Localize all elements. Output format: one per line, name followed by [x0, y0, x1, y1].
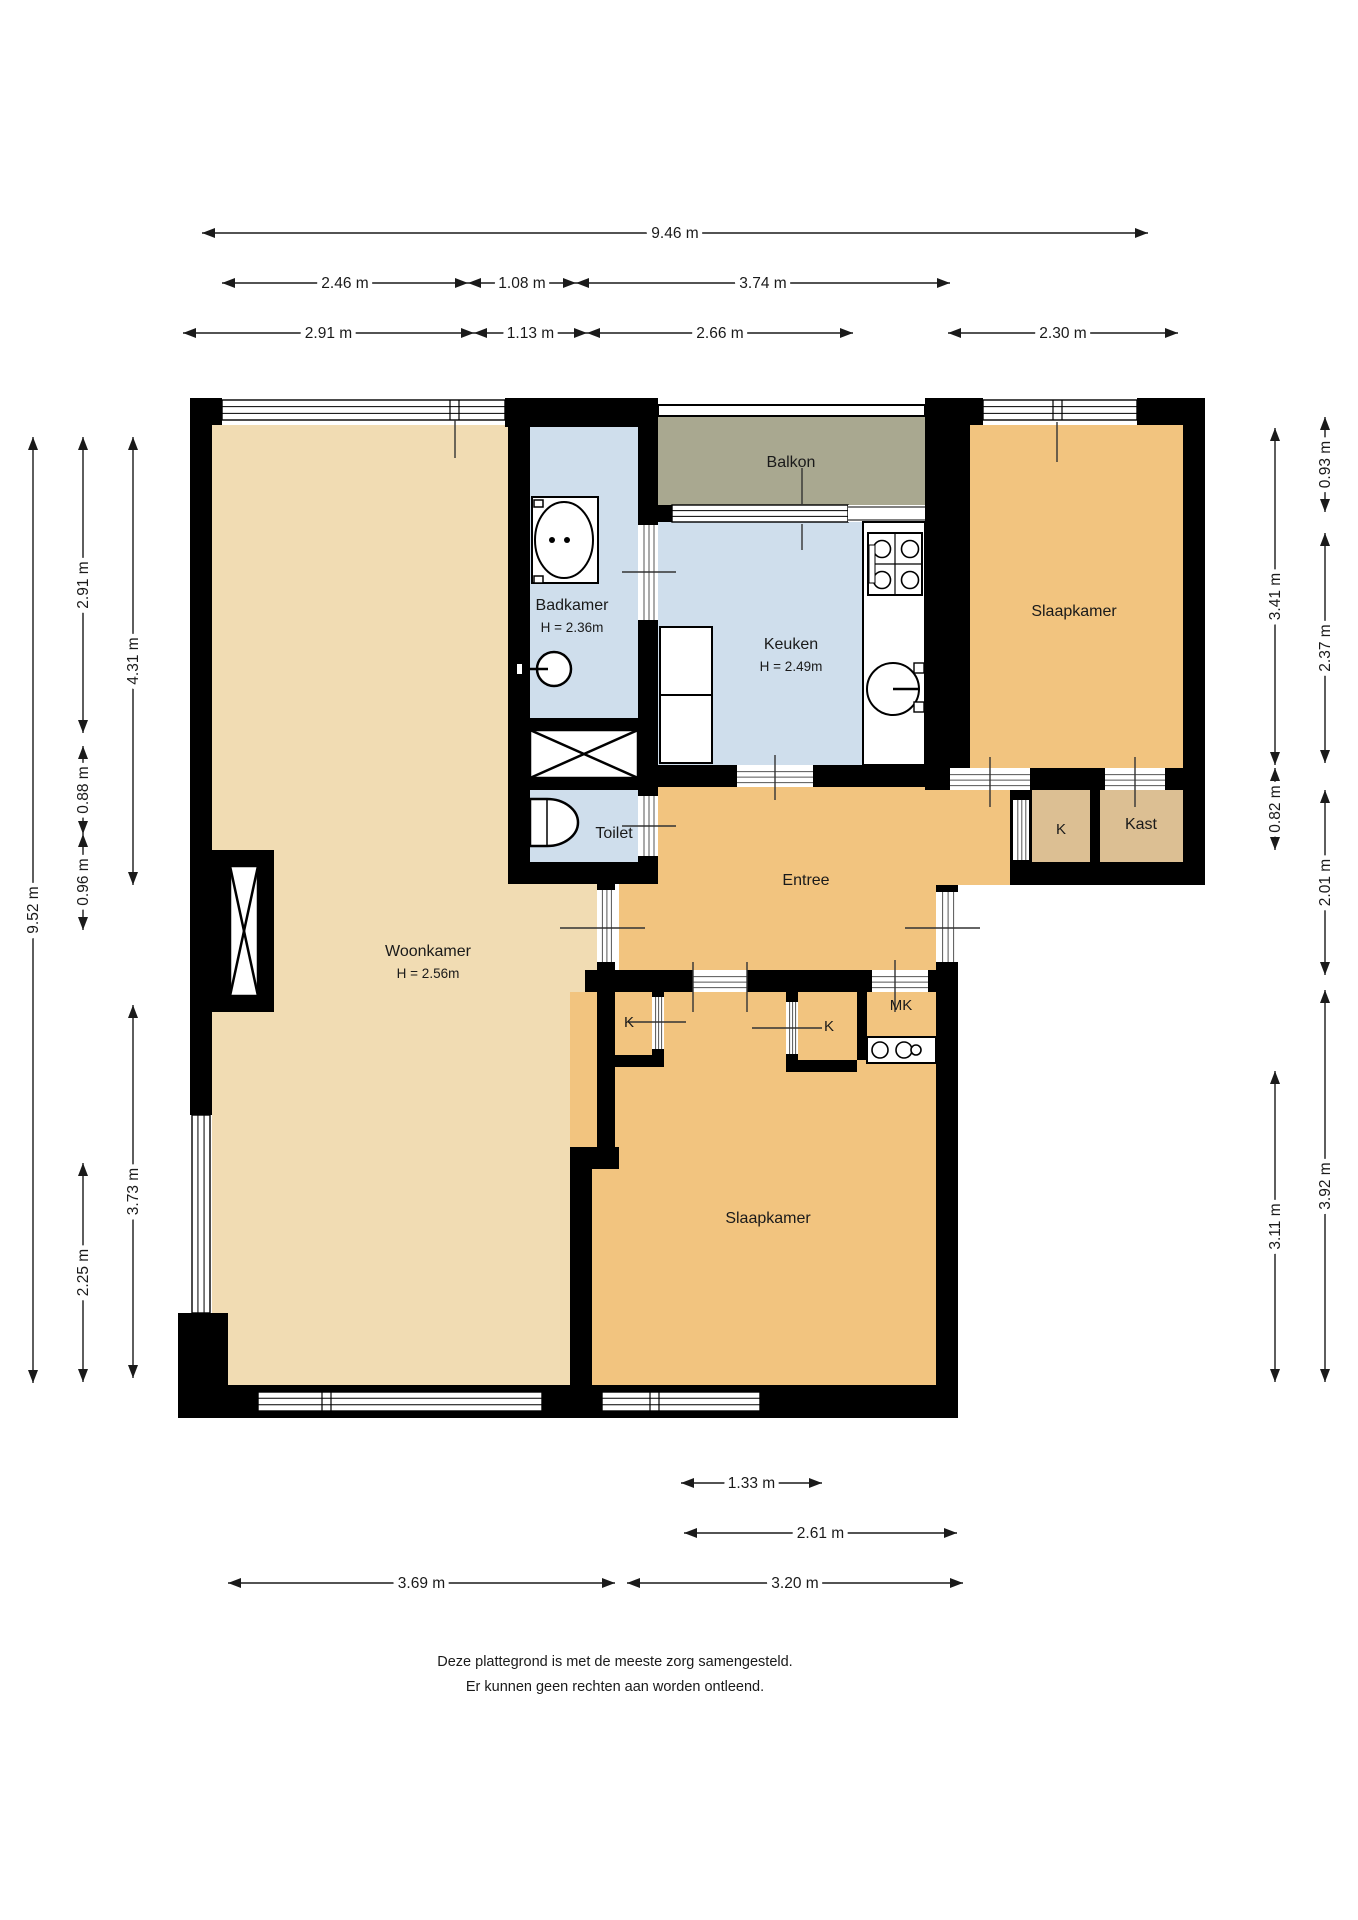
room-label-slaapkamer-1: Slaapkamer: [1031, 603, 1117, 620]
dimension-arrow: [950, 1578, 963, 1588]
dimension-0.96-m: 0.96 m: [75, 834, 92, 930]
dimension-arrow: [78, 821, 88, 834]
dimension-arrow: [78, 437, 88, 450]
dimension-arrow: [78, 834, 88, 847]
dimension-arrow: [937, 278, 950, 288]
wall: [190, 398, 222, 425]
dimension-arrow: [183, 328, 196, 338]
dimension-arrow: [461, 328, 474, 338]
dimension-arrow: [627, 1578, 640, 1588]
dimension-arrow: [222, 278, 235, 288]
dimension-arrow: [1270, 428, 1280, 441]
dimension-label: 2.66 m: [696, 325, 743, 342]
dimension-label: 2.30 m: [1039, 325, 1086, 342]
dimension-3.92-m: 3.92 m: [1317, 990, 1334, 1382]
dimension-3.73-m: 3.73 m: [125, 1005, 142, 1378]
dimension-label: 2.25 m: [75, 1249, 92, 1296]
stove-icon: [869, 545, 875, 583]
balcony-railing: [658, 405, 925, 416]
floorplan-canvas: BalkonBadkamerH = 2.36mKeukenH = 2.49mSl…: [0, 0, 1358, 1920]
door-opening-woonkamer: [597, 890, 615, 962]
dimension-label: 3.20 m: [771, 1575, 818, 1592]
room-label-toilet: Toilet: [595, 825, 633, 842]
dimension-arrow: [1270, 837, 1280, 850]
dimension-label: 2.61 m: [797, 1525, 844, 1542]
wall: [190, 425, 212, 1115]
dimension-arrow: [78, 720, 88, 733]
meter-icon: [896, 1042, 912, 1058]
dimension-arrow: [948, 328, 961, 338]
meter-icon: [911, 1045, 921, 1055]
sink-icon: [516, 663, 523, 675]
door-opening-meterkast: [872, 970, 928, 992]
dimension-label: 0.82 m: [1267, 785, 1284, 832]
window: [222, 400, 505, 420]
fills-layer: [212, 412, 1183, 1385]
window: [258, 1392, 542, 1411]
stove-burner-icon: [874, 572, 891, 589]
dimension-arrow: [563, 278, 576, 288]
dimension-arrow: [78, 1163, 88, 1176]
wall: [1183, 425, 1205, 885]
dimension-arrow: [944, 1528, 957, 1538]
stove-burner-icon: [874, 541, 891, 558]
washbasin-icon: [534, 500, 543, 507]
door-opening-slaapkamer-2: [693, 970, 747, 992]
disclaimer-line-2: Er kunnen geen rechten aan worden ontlee…: [0, 1675, 1230, 1700]
window: [192, 1115, 210, 1313]
dimension-arrow: [202, 228, 215, 238]
dimension-0.88-m: 0.88 m: [75, 746, 92, 834]
window: [602, 1392, 760, 1411]
wall: [936, 992, 958, 1385]
washbasin-icon: [549, 537, 555, 543]
dimension-label: 1.33 m: [728, 1475, 775, 1492]
dimension-arrow: [1320, 790, 1330, 803]
room-height-label-woonkamer: H = 2.56m: [397, 966, 460, 981]
dimension-arrow: [1135, 228, 1148, 238]
dimension-arrow: [468, 278, 481, 288]
dimension-arrow: [1320, 1369, 1330, 1382]
door-opening-closet-k-1: [1013, 800, 1029, 860]
wall: [1090, 790, 1100, 862]
dimension-arrow: [1320, 990, 1330, 1003]
dimension-3.74-m: 3.74 m: [576, 275, 950, 292]
room-slaapkamer-1: [965, 425, 1183, 768]
room-label-closet-k-1: K: [1056, 821, 1066, 838]
dimension-arrow: [78, 1369, 88, 1382]
dimension-2.91-m: 2.91 m: [183, 325, 474, 342]
wall: [1137, 398, 1205, 425]
stove-burner-icon: [902, 572, 919, 589]
wall: [508, 425, 530, 884]
room-label-closet-k-3: K: [824, 1018, 834, 1035]
dimension-label: 2.01 m: [1317, 859, 1334, 906]
disclaimer: Deze plattegrond is met de meeste zorg s…: [0, 1650, 1230, 1700]
dimension-arrow: [78, 746, 88, 759]
dimension-arrow: [1270, 1071, 1280, 1084]
dimension-9.46-m: 9.46 m: [202, 225, 1148, 242]
wall: [178, 1313, 228, 1418]
wall: [925, 398, 983, 425]
dimension-arrow: [78, 917, 88, 930]
dimension-label: 0.88 m: [75, 766, 92, 813]
dimension-4.31-m: 4.31 m: [125, 437, 142, 885]
dimension-label: 3.73 m: [125, 1168, 142, 1215]
dimension-arrow: [28, 1370, 38, 1383]
dimension-3.41-m: 3.41 m: [1267, 428, 1284, 765]
dimension-2.91-m: 2.91 m: [75, 437, 92, 733]
dimension-2.01-m: 2.01 m: [1317, 790, 1334, 975]
dimension-arrow: [1270, 1369, 1280, 1382]
dimension-label: 1.08 m: [498, 275, 545, 292]
dimension-arrow: [681, 1478, 694, 1488]
wall: [508, 862, 658, 884]
dimension-label: 2.37 m: [1317, 624, 1334, 671]
dimension-arrow: [1320, 499, 1330, 512]
dimension-arrow: [576, 278, 589, 288]
dimension-2.61-m: 2.61 m: [684, 1525, 957, 1542]
room-label-meterkast: MK: [890, 997, 913, 1014]
dimension-label: 3.69 m: [398, 1575, 445, 1592]
front-door-opening: [936, 892, 958, 962]
dimension-arrow: [1320, 533, 1330, 546]
dimension-label: 0.93 m: [1317, 441, 1334, 488]
wall: [570, 1147, 619, 1169]
dimension-arrow: [840, 328, 853, 338]
dimension-1.13-m: 1.13 m: [474, 325, 587, 342]
room-height-label-badkamer: H = 2.36m: [541, 620, 604, 635]
room-label-entree: Entree: [782, 872, 829, 889]
dimension-label: 9.52 m: [25, 886, 42, 933]
dimension-label: 9.46 m: [651, 225, 698, 242]
dimension-2.46-m: 2.46 m: [222, 275, 468, 292]
dimension-9.52-m: 9.52 m: [25, 437, 42, 1383]
washbasin-icon: [564, 537, 570, 543]
meter-icon: [872, 1042, 888, 1058]
room-label-closet-k-2: K: [624, 1014, 634, 1031]
floorplan-svg: BalkonBadkamerH = 2.36mKeukenH = 2.49mSl…: [0, 0, 1358, 1920]
kitchen-cabinet-icon: [660, 695, 712, 763]
door-opening-closet-k-2: [652, 997, 664, 1049]
dimension-3.20-m: 3.20 m: [627, 1575, 963, 1592]
dimension-2.66-m: 2.66 m: [587, 325, 853, 342]
dimension-label: 2.46 m: [321, 275, 368, 292]
room-height-label-keuken: H = 2.49m: [760, 659, 823, 674]
dimension-label: 2.91 m: [75, 561, 92, 608]
dimension-arrow: [128, 437, 138, 450]
dimension-arrow: [228, 1578, 241, 1588]
wall: [786, 1060, 857, 1072]
balcony-door-opening: [848, 505, 925, 522]
dimension-label: 1.13 m: [507, 325, 554, 342]
kitchen-faucet-icon: [914, 702, 924, 712]
dimension-1.33-m: 1.33 m: [681, 1475, 822, 1492]
toilet-icon: [530, 799, 578, 846]
dimension-label: 3.92 m: [1317, 1162, 1334, 1209]
wall: [597, 1055, 664, 1067]
room-label-woonkamer: Woonkamer: [385, 943, 472, 960]
dimension-arrow: [474, 328, 487, 338]
dimension-arrow: [1165, 328, 1178, 338]
dimension-label: 3.11 m: [1267, 1203, 1284, 1249]
dimension-0.93-m: 0.93 m: [1317, 417, 1334, 512]
wall: [857, 992, 867, 1060]
dimension-arrow: [574, 328, 587, 338]
wall: [505, 398, 658, 427]
stove-burner-icon: [902, 541, 919, 558]
dimension-label: 3.74 m: [739, 275, 786, 292]
window: [983, 400, 1137, 420]
kitchen-faucet-icon: [914, 663, 924, 673]
window: [672, 505, 848, 522]
room-label-kast: Kast: [1125, 816, 1158, 833]
disclaimer-line-1: Deze plattegrond is met de meeste zorg s…: [0, 1650, 1230, 1675]
dimension-label: 3.41 m: [1267, 573, 1284, 620]
dimension-arrow: [809, 1478, 822, 1488]
washbasin-icon: [534, 576, 543, 583]
dimension-label: 0.96 m: [75, 858, 92, 905]
wall: [1010, 862, 1205, 885]
dimension-3.69-m: 3.69 m: [228, 1575, 615, 1592]
kitchen-cabinet-icon: [660, 627, 712, 695]
dimension-arrow: [128, 1005, 138, 1018]
dimension-arrow: [1320, 962, 1330, 975]
dimension-2.30-m: 2.30 m: [948, 325, 1178, 342]
dimension-arrow: [1320, 417, 1330, 430]
dimension-arrow: [128, 1365, 138, 1378]
dimension-0.82-m: 0.82 m: [1267, 768, 1284, 850]
dimension-arrow: [28, 437, 38, 450]
dimension-arrow: [602, 1578, 615, 1588]
dimension-arrow: [1270, 768, 1280, 781]
room-label-keuken: Keuken: [764, 636, 818, 653]
dimension-arrow: [587, 328, 600, 338]
dimension-3.11-m: 3.11 m: [1267, 1071, 1284, 1382]
dimension-arrow: [1270, 752, 1280, 765]
room-label-balkon: Balkon: [767, 454, 816, 471]
wall: [925, 425, 970, 790]
dimension-2.25-m: 2.25 m: [75, 1163, 92, 1382]
dimension-1.08-m: 1.08 m: [468, 275, 576, 292]
room-label-slaapkamer-2: Slaapkamer: [725, 1210, 811, 1227]
dimension-arrow: [684, 1528, 697, 1538]
wall: [570, 1169, 592, 1385]
room-label-badkamer: Badkamer: [536, 597, 610, 614]
dimension-label: 4.31 m: [125, 637, 142, 684]
dimension-arrow: [128, 872, 138, 885]
wall: [658, 505, 672, 522]
dimension-2.37-m: 2.37 m: [1317, 533, 1334, 763]
dimension-label: 2.91 m: [305, 325, 352, 342]
dimension-arrow: [455, 278, 468, 288]
dimension-arrow: [1320, 750, 1330, 763]
